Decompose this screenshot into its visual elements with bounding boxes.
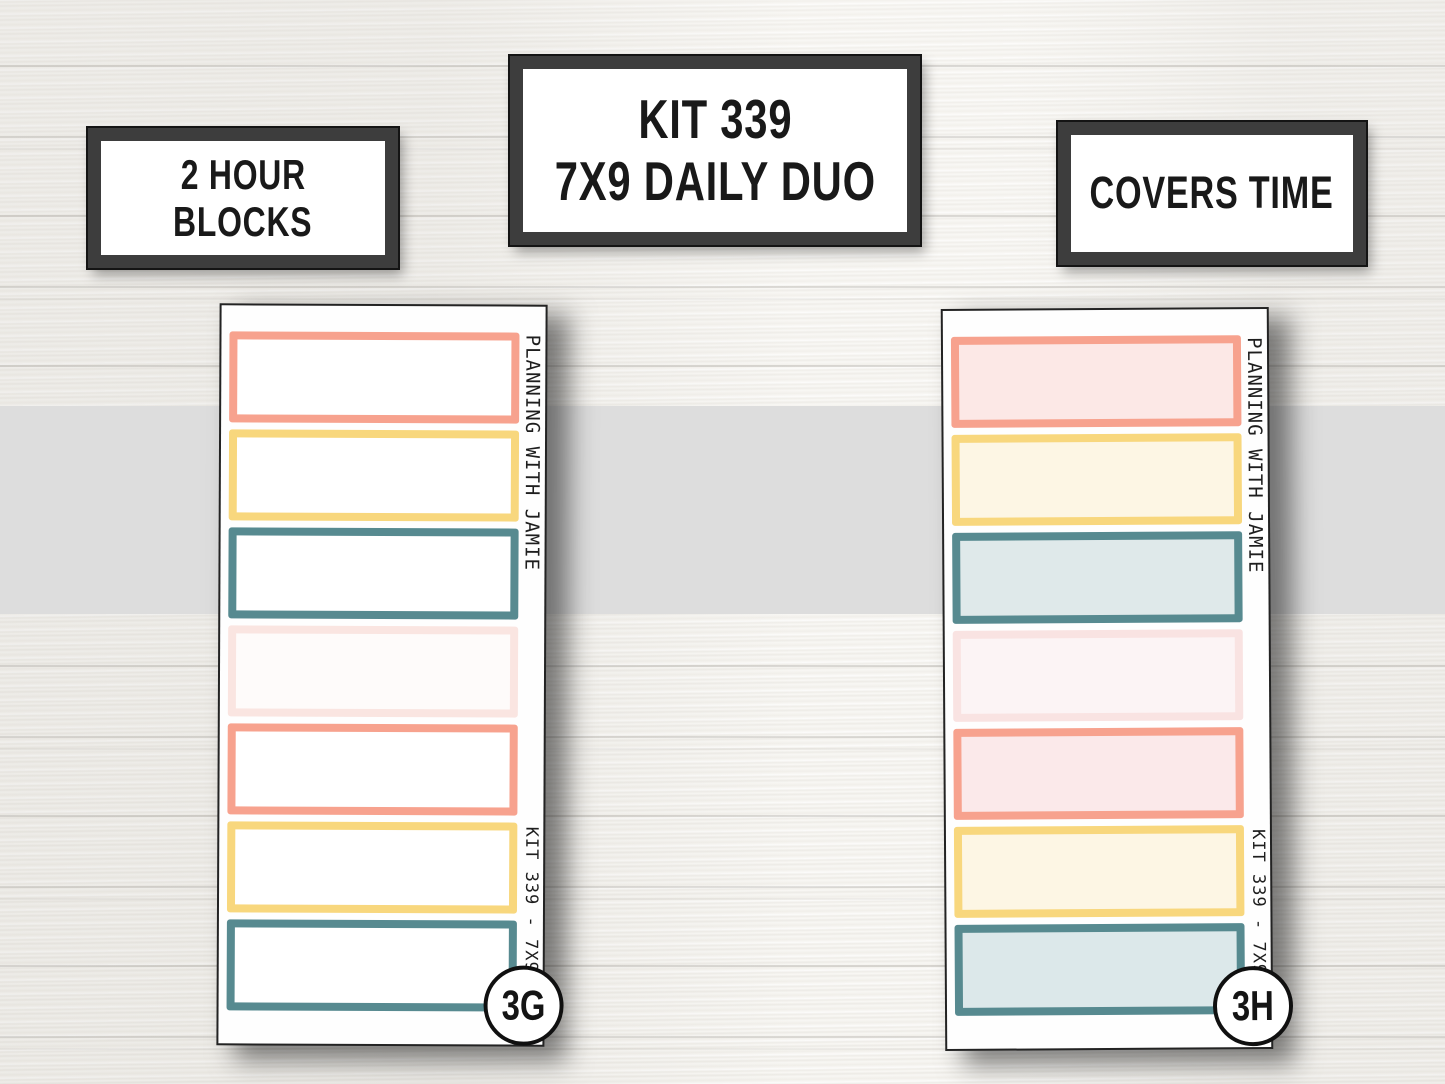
sticker-box-salmon: [229, 331, 519, 423]
sticker-box-column: [227, 331, 520, 1011]
label-covers-time-text: COVERS TIME: [1090, 168, 1334, 218]
label-kit-title-line1: KIT 339: [638, 89, 792, 151]
sticker-box-yellow: [227, 821, 517, 913]
sticker-box-yellow: [952, 433, 1243, 526]
sheet-badge-3g-text: 3G: [502, 982, 546, 1030]
sticker-box-pale-pink: [228, 625, 518, 717]
label-kit-title: KIT 339 7X9 DAILY DUO: [510, 56, 920, 245]
sheet-badge-3g: 3G: [483, 965, 563, 1045]
sticker-box-pale-pink: [953, 629, 1244, 722]
sticker-box-teal: [228, 527, 518, 619]
sheet-badge-3h: 3H: [1213, 966, 1293, 1046]
label-hour-blocks-line1: 2 HOUR: [180, 151, 305, 198]
sticker-box-salmon: [227, 723, 517, 815]
sticker-box-yellow: [229, 429, 519, 521]
sticker-box-teal: [954, 923, 1245, 1016]
label-covers-time: COVERS TIME: [1058, 122, 1366, 265]
sticker-box-column: [951, 335, 1245, 1016]
sticker-box-salmon: [953, 727, 1244, 820]
sticker-box-teal: [227, 919, 517, 1011]
sticker-box-yellow: [954, 825, 1245, 918]
sticker-sheet-3h: PLANNING WITH JAMIE KIT 339 - 7X9 DD 3H: [943, 309, 1272, 1049]
brand-vertical-text: PLANNING WITH JAMIE: [520, 335, 543, 571]
label-hour-blocks-line2: BLOCKS: [173, 198, 312, 245]
sticker-sheet-3g: PLANNING WITH JAMIE KIT 339 - 7X9 DD 3G: [218, 305, 545, 1044]
label-hour-blocks: 2 HOUR BLOCKS: [88, 128, 398, 268]
sheet-badge-3h-text: 3H: [1232, 982, 1274, 1030]
sticker-box-salmon: [951, 335, 1242, 428]
product-image: 2 HOUR BLOCKS KIT 339 7X9 DAILY DUO COVE…: [0, 0, 1445, 1084]
sticker-box-teal: [952, 531, 1243, 624]
brand-vertical-text: PLANNING WITH JAMIE: [1243, 337, 1266, 573]
label-kit-title-line2: 7X9 DAILY DUO: [554, 151, 875, 213]
